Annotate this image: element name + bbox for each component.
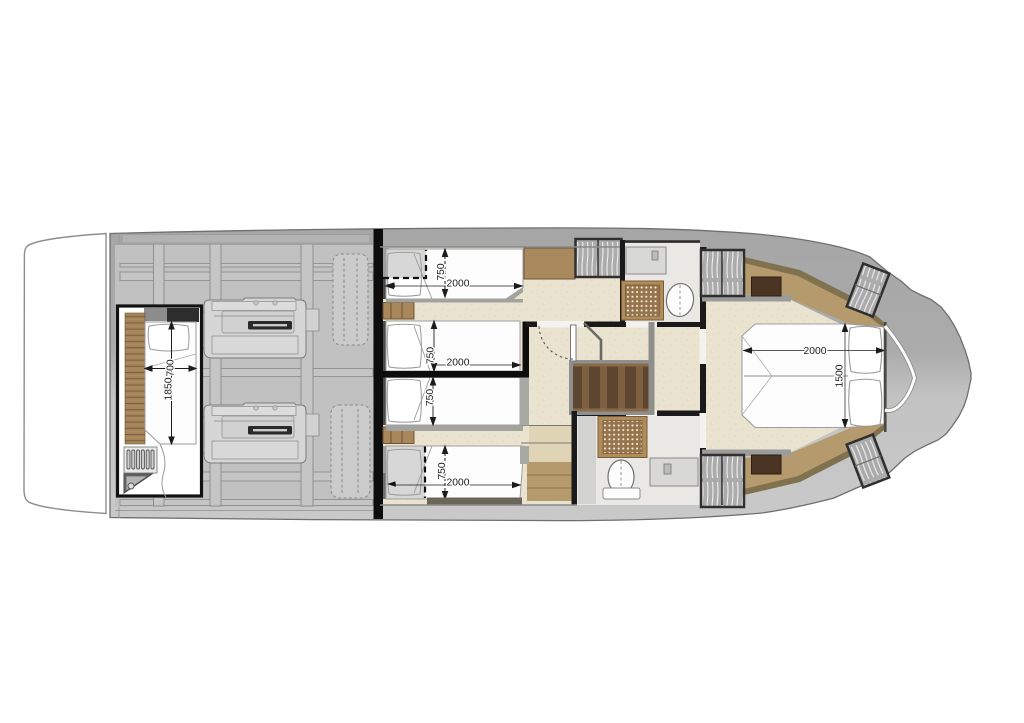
svg-text:2000: 2000 bbox=[447, 358, 470, 369]
svg-text:1850: 1850 bbox=[164, 377, 175, 400]
svg-text:700: 700 bbox=[166, 359, 177, 376]
svg-text:2000: 2000 bbox=[447, 478, 470, 489]
svg-text:750: 750 bbox=[436, 263, 447, 280]
svg-text:1500: 1500 bbox=[835, 364, 846, 387]
svg-text:750: 750 bbox=[426, 347, 437, 364]
svg-text:2000: 2000 bbox=[447, 279, 470, 290]
svg-text:750: 750 bbox=[425, 389, 436, 406]
svg-text:2000: 2000 bbox=[804, 346, 827, 357]
